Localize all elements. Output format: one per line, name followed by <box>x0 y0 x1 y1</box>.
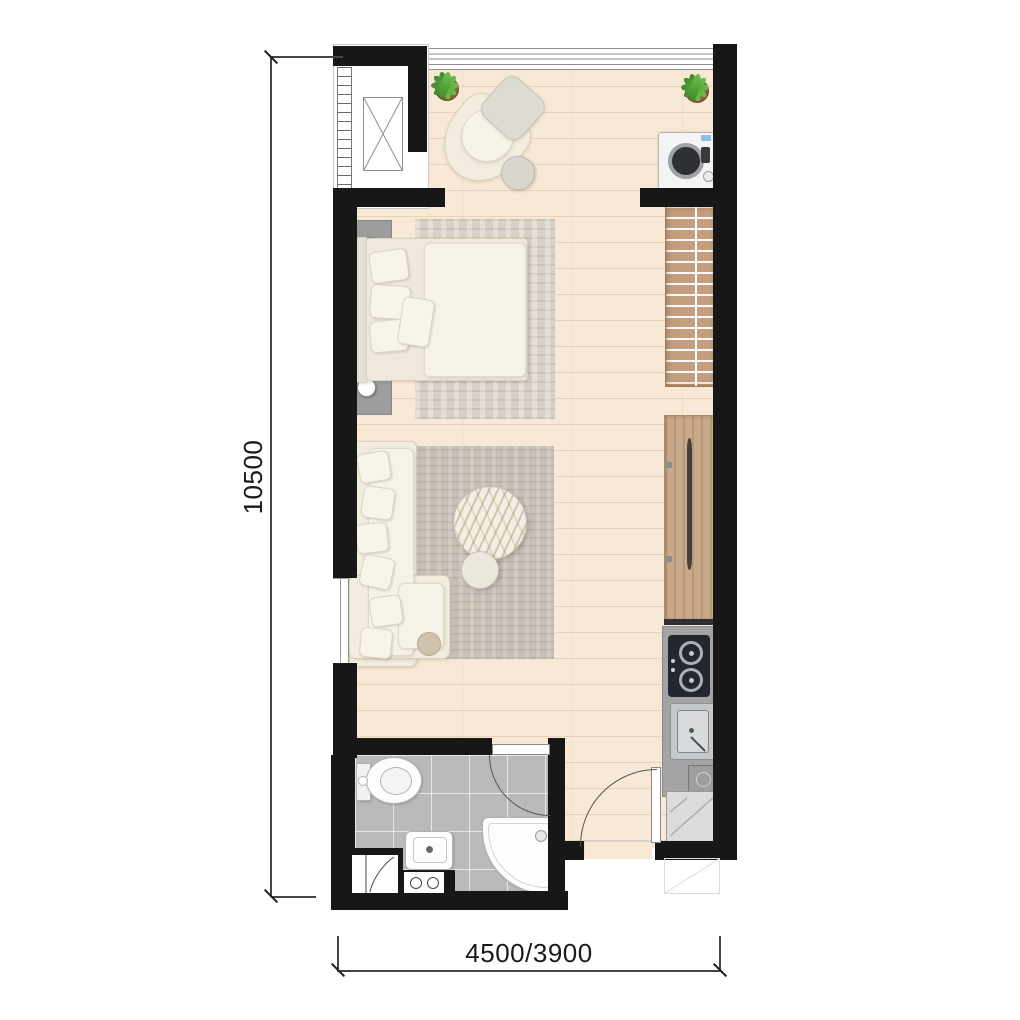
ac-condenser-unit-icon <box>363 97 403 171</box>
sofa-pillow <box>359 626 394 659</box>
dimension-extension <box>271 896 316 898</box>
sofa-pillow <box>356 449 393 484</box>
fridge-icon <box>666 791 717 843</box>
wall-bathroom-south <box>448 891 568 910</box>
wall-west-lower <box>333 663 357 758</box>
wall-bathroom-divider <box>355 738 492 755</box>
wall-west-upper <box>333 188 357 578</box>
washing-machine-icon <box>658 132 715 192</box>
tv-mount <box>666 556 672 562</box>
bed-pillow <box>368 248 410 285</box>
tv-mount <box>666 462 672 468</box>
wall-east <box>713 44 737 860</box>
counter-divider <box>664 619 717 625</box>
entry-door-swing-icon <box>580 769 657 846</box>
wall-bathroom-east <box>548 738 565 898</box>
meter-box-icon <box>404 872 444 893</box>
bathroom-door-swing-icon <box>489 755 550 816</box>
small-coffee-table-icon <box>461 551 499 589</box>
sofa-side-table-icon <box>417 632 441 656</box>
tv-icon <box>687 438 692 570</box>
sofa-pillow <box>355 521 390 554</box>
louver-screen-icon <box>337 67 352 189</box>
dimension-extension <box>719 936 721 972</box>
exterior-shaft <box>664 858 720 894</box>
dimension-line-vertical <box>270 57 272 897</box>
wall-closet-column <box>408 46 427 152</box>
marble-coffee-table-icon <box>453 486 527 560</box>
wall-washer-stub <box>640 188 715 207</box>
potted-plant-icon <box>426 66 464 108</box>
round-side-table-icon <box>501 156 535 190</box>
wash-basin-icon <box>405 831 453 870</box>
sofa-pillow <box>358 553 396 591</box>
sofa-pillow <box>360 485 396 521</box>
dimension-extension <box>271 56 343 58</box>
kitchen-sink-icon <box>670 703 716 760</box>
service-niche-icon <box>352 855 398 893</box>
height-dimension-label: 10500 <box>238 407 268 547</box>
bed-duvet <box>424 243 526 377</box>
bathroom-door-leaf <box>492 744 550 755</box>
open-wardrobe-icon <box>665 205 717 387</box>
dimension-line-horizontal <box>338 970 721 972</box>
potted-plant-icon <box>676 68 714 110</box>
north-window-icon <box>425 44 719 70</box>
toilet-icon <box>356 757 422 803</box>
width-dimension-label: 4500/3900 <box>408 938 650 968</box>
stove-icon <box>668 635 710 697</box>
wall-closet-top <box>333 46 413 66</box>
sofa-pillow <box>368 594 404 628</box>
dimension-extension <box>337 936 339 972</box>
floor-plan-canvas: 10500 4500/3900 <box>0 0 1020 1020</box>
